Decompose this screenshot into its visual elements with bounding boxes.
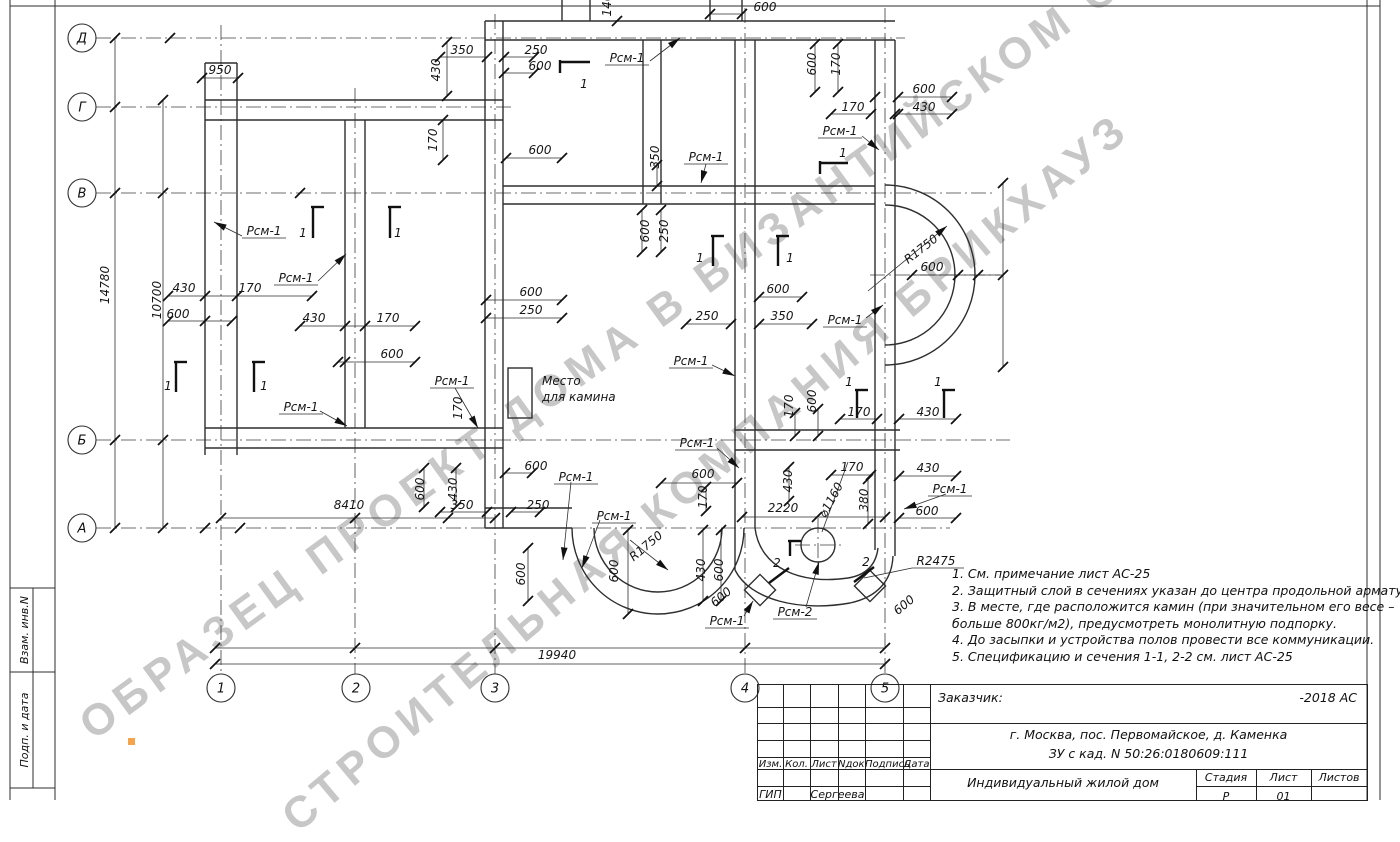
- leader-arrowhead: [561, 547, 568, 560]
- dim-label: 1: [845, 375, 853, 389]
- col-data: Дата: [903, 759, 930, 770]
- dim-label: 1: [260, 379, 268, 393]
- dim-label: Рсм-1: [435, 374, 470, 388]
- project-title: Индивидуальный жилой дом: [930, 775, 1196, 790]
- stage-value: Р: [1196, 790, 1256, 803]
- dim-label: 430: [913, 100, 936, 114]
- dim-label: 10700: [150, 281, 164, 320]
- dim-label: 600: [891, 592, 918, 618]
- dim-label: 8410: [334, 498, 365, 512]
- axis-bubble-label: 3: [491, 682, 499, 697]
- role-cell: ГИП: [758, 788, 783, 801]
- dim-label: Рсм-1: [823, 124, 858, 138]
- axis-bubble-label: Б: [78, 434, 87, 449]
- dim-label: 430: [917, 405, 940, 419]
- dim-label: 600: [805, 52, 819, 75]
- axis-bubble-label: 2: [352, 682, 360, 697]
- dim-label: 170: [377, 311, 400, 325]
- dim-label: 250: [696, 309, 719, 323]
- col-izm: Изм.: [758, 759, 783, 770]
- dim-label: 600: [514, 562, 528, 585]
- address-line2: ЗУ с кад. N 50:26:0180609:111: [930, 746, 1367, 761]
- fireplace-outline: [508, 368, 532, 418]
- title-block: Заказчик: -2018 АС г. Москва, пос. Перво…: [757, 684, 1368, 801]
- axis-bubble-label: А: [77, 522, 87, 537]
- dim-label: для камина: [541, 390, 616, 404]
- note-line: 2. Защитный слой в сечениях указан до це…: [952, 583, 1388, 600]
- dim-label: 170: [239, 281, 262, 295]
- notes: 1. См. примечание лист АС-25 2. Защитный…: [952, 566, 1388, 666]
- dim-label: 430: [446, 477, 460, 500]
- dim-label: 430: [694, 558, 708, 581]
- note-line: больше 800кг/м2), предусмотреть монолитн…: [952, 616, 1388, 633]
- dim-label: 600: [525, 459, 548, 473]
- dim-label: 250: [525, 43, 548, 57]
- sheets-header: Листов: [1311, 771, 1367, 784]
- dim-label: ⌀1160: [816, 480, 846, 520]
- section-marker: [854, 567, 874, 582]
- dim-label: 600: [767, 282, 790, 296]
- dim-label: Рсм-1: [610, 51, 645, 65]
- note-line: 4. До засыпки и устройства полов провест…: [952, 632, 1388, 649]
- name-cell: Сергеева: [810, 788, 865, 801]
- dim-label: 250: [657, 219, 671, 242]
- dim-label: 350: [451, 498, 474, 512]
- dim-label: 1: [786, 251, 794, 265]
- leader-arrowhead: [867, 139, 879, 150]
- dim-label: 600: [805, 389, 819, 412]
- wall-lines: [205, 0, 975, 614]
- dim-label: 2220: [768, 501, 799, 515]
- dim-label: 600: [520, 285, 543, 299]
- dim-label: 170: [848, 405, 871, 419]
- axis-bubble-label: 1: [217, 682, 225, 697]
- dim-label: 430: [781, 469, 795, 492]
- axis-bubble-label: Г: [78, 101, 87, 116]
- dim-label: Рсм-1: [828, 313, 863, 327]
- axis-bubble-label: Д: [76, 32, 87, 47]
- customer-label: Заказчик:: [938, 690, 1003, 705]
- dim-tick: [235, 523, 245, 533]
- dim-label: 2: [773, 556, 781, 570]
- dim-label: 170: [451, 396, 465, 419]
- sidebar-cell-label: Взам. инв.N: [18, 596, 31, 664]
- axis-bubble-label: В: [78, 187, 87, 202]
- dim-label: 600: [381, 347, 404, 361]
- dim-label: 170: [782, 394, 796, 417]
- dim-label: 350: [451, 43, 474, 57]
- dim-label: 600: [692, 467, 715, 481]
- dim-label: 600: [638, 219, 652, 242]
- leader-arrowhead: [722, 368, 735, 376]
- dim-label: 430: [303, 311, 326, 325]
- dim-label: 170: [842, 100, 865, 114]
- dim-label: 600: [529, 59, 552, 73]
- note-line: 1. См. примечание лист АС-25: [952, 566, 1388, 583]
- dim-label: 1: [299, 226, 307, 240]
- dim-label: 600: [916, 504, 939, 518]
- dim-label: 140: [600, 0, 614, 16]
- dim-label: R1750: [627, 528, 666, 564]
- note-line: 5. Спецификацию и сечения 1-1, 2-2 см. л…: [952, 649, 1388, 666]
- leader-arrowhead: [812, 562, 819, 575]
- dim-label: 2: [862, 555, 870, 569]
- address-line1: г. Москва, пос. Первомайское, д. Каменка: [930, 727, 1367, 742]
- col-podpis: Подпись: [865, 759, 903, 770]
- sheet-value: 01: [1256, 790, 1311, 803]
- diagonal-column: [744, 574, 775, 605]
- dim-label: 1: [839, 146, 847, 160]
- dim-label: 1: [696, 251, 704, 265]
- dim-label: R2475: [917, 554, 956, 568]
- axis-bubble-label: 4: [741, 682, 749, 697]
- dim-label: 600: [167, 307, 190, 321]
- dim-label: 430: [173, 281, 196, 295]
- dim-label: Рсм-1: [689, 150, 724, 164]
- dim-label: 170: [841, 460, 864, 474]
- dim-label: 950: [209, 63, 232, 77]
- floor-plan-canvas: Взам. инв.N Подп. и дата ДГВБА1234595014…: [0, 0, 1400, 800]
- leader-arrowhead: [214, 222, 227, 231]
- stage-header: Стадия: [1196, 771, 1256, 784]
- dim-label: 380: [857, 488, 871, 511]
- dim-label: 1: [580, 77, 588, 91]
- dim-label: Рсм-1: [597, 509, 632, 523]
- dim-label: 430: [917, 461, 940, 475]
- dim-label: 1: [934, 375, 942, 389]
- dim-label: 19940: [538, 648, 577, 662]
- dim-label: Рсм-1: [674, 354, 709, 368]
- dim-label: 350: [648, 145, 662, 168]
- dim-label: 600: [708, 584, 735, 610]
- dim-label: Рсм-1: [933, 482, 968, 496]
- highlight-dot: [128, 738, 135, 745]
- dim-label: 170: [426, 128, 440, 151]
- leader-arrowhead: [871, 305, 883, 315]
- dim-label: Рсм-1: [710, 614, 745, 628]
- dim-label: 600: [913, 82, 936, 96]
- dim-label: 170: [829, 52, 843, 75]
- col-kol: Кол.: [783, 759, 810, 770]
- dim-label: 600: [529, 143, 552, 157]
- dim-label: Место: [542, 374, 581, 388]
- dim-label: 350: [771, 309, 794, 323]
- col-ndok: Nдок.: [838, 759, 865, 770]
- dim-label: 600: [921, 260, 944, 274]
- leader-arrowhead: [469, 415, 478, 428]
- dim-label: Рсм-1: [559, 470, 594, 484]
- sheet-header: Лист: [1256, 771, 1311, 784]
- dim-label: Рсм-2: [778, 605, 813, 619]
- leader-arrowhead: [656, 560, 668, 570]
- dim-label: 600: [712, 558, 726, 581]
- dim-label: 1: [164, 379, 172, 393]
- dim-label: 250: [527, 498, 550, 512]
- dim-label: Рсм-1: [247, 224, 282, 238]
- dim-label: 430: [429, 58, 443, 81]
- col-list: Лист: [810, 759, 838, 770]
- note-line: 3. В месте, где расположится камин (при …: [952, 599, 1388, 616]
- dim-label: 250: [520, 303, 543, 317]
- dim-label: Рсм-1: [279, 271, 314, 285]
- dim-label: Рсм-1: [284, 400, 319, 414]
- doc-code: -2018 АС: [1299, 690, 1357, 705]
- dim-label: 14780: [98, 266, 112, 305]
- leader-arrowhead: [701, 170, 707, 183]
- dim-label: Рсм-1: [680, 436, 715, 450]
- sidebar-cell-label: Подп. и дата: [18, 692, 31, 767]
- dim-label: 600: [754, 0, 777, 14]
- section-marker: [769, 568, 789, 583]
- dim-label: 600: [413, 477, 427, 500]
- leader-arrowhead: [582, 555, 590, 568]
- dim-label: 1: [394, 226, 402, 240]
- dim-label: 170: [696, 485, 710, 508]
- dim-label: 600: [607, 559, 621, 582]
